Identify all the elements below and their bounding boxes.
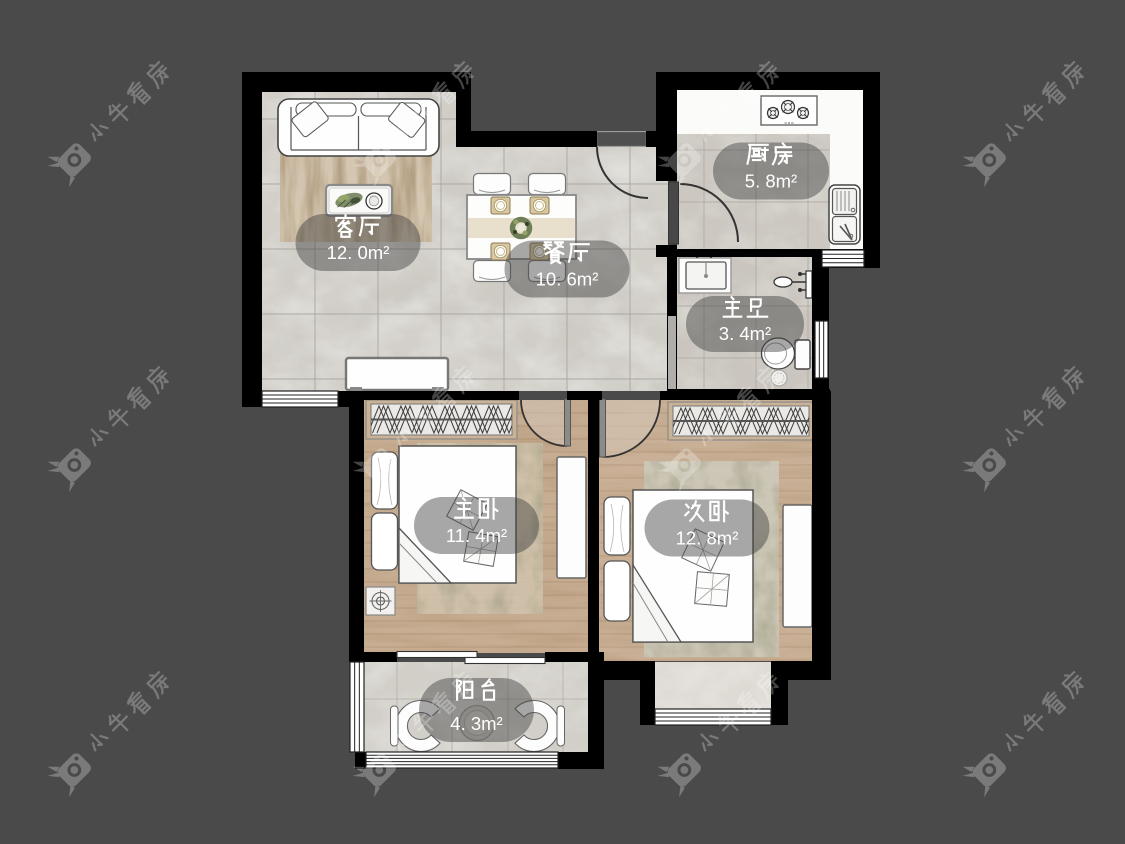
svg-text:12. 8m²: 12. 8m²: [676, 528, 739, 549]
svg-text:3. 4m²: 3. 4m²: [719, 323, 771, 344]
svg-text:4. 3m²: 4. 3m²: [450, 713, 502, 734]
svg-text:12. 0m²: 12. 0m²: [327, 242, 390, 263]
svg-text:o o o: o o o: [785, 120, 795, 125]
svg-text:5. 8m²: 5. 8m²: [745, 171, 797, 192]
svg-text:10. 6m²: 10. 6m²: [536, 269, 599, 290]
svg-text:11. 4m²: 11. 4m²: [446, 525, 507, 546]
